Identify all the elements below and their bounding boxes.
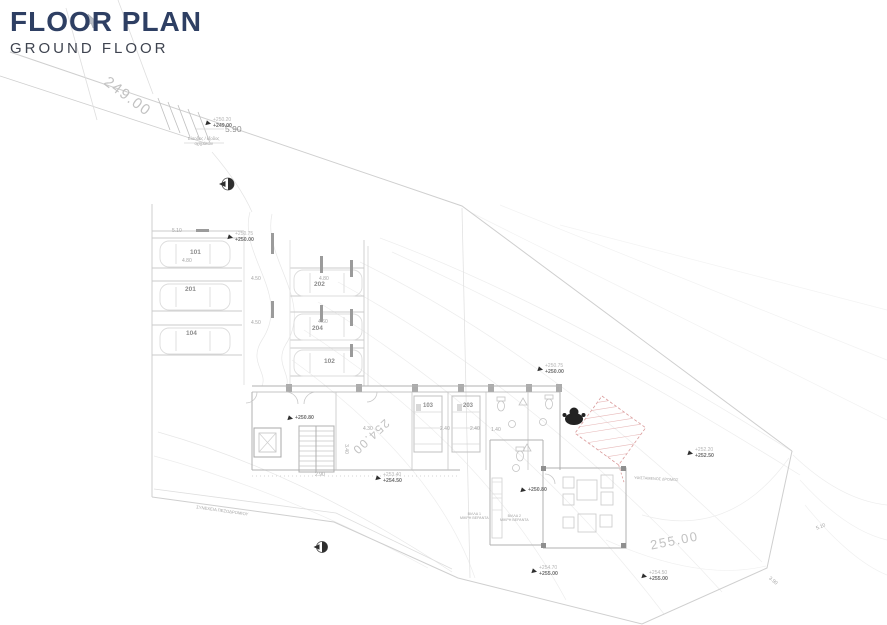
villa1-annotation: ΒΙΛΛΑ 1 ΜΙΚΡΗ ΒΕΡΑΝΤΑ	[460, 512, 489, 521]
red-annotation-structure	[568, 396, 659, 484]
north-benchmark-icon-2	[314, 542, 328, 553]
stall-number-204: 204	[312, 325, 323, 332]
spot-level: +250.20+249.00	[206, 117, 232, 130]
stall-number-104: 104	[186, 330, 197, 337]
spot-level-icon	[537, 366, 543, 372]
tree-icon	[563, 408, 586, 426]
page-subtitle: GROUND FLOOR	[10, 40, 202, 57]
spot-level: +250.75+250.00	[228, 231, 254, 244]
floor-plan-page: FLOOR PLAN GROUND FLOOR 249.00 254.00 25…	[0, 0, 887, 625]
dim-label: 4.50	[251, 276, 261, 282]
dim-label: 4.30	[363, 426, 373, 432]
dim-label: 4.80	[319, 276, 329, 282]
spot-level-icon	[531, 568, 537, 574]
villa2-annotation: ΒΙΛΛΑ 2 ΜΙΚΡΗ ΒΕΡΑΝΤΑ	[500, 514, 529, 523]
spot-level-icon	[375, 475, 381, 481]
dim-label: 2.40	[440, 426, 450, 432]
spot-level: +254.70+255.00	[532, 565, 558, 578]
structural-columns	[196, 229, 562, 392]
entrance-annotation: Είσοδος / έξοδος οχημάτων	[188, 136, 219, 147]
spot-level-icon	[227, 234, 233, 240]
dim-label: 3.40	[343, 444, 349, 454]
spot-level-icon	[205, 120, 211, 126]
spot-level-icon	[687, 450, 693, 456]
room-number-203: 203	[463, 403, 473, 409]
spot-level: +250.75+250.00	[538, 363, 564, 376]
dim-label: 1.40	[491, 427, 501, 433]
spot-level: +253.40+254.50	[376, 472, 402, 485]
plan-header: FLOOR PLAN GROUND FLOOR	[10, 6, 202, 57]
dim-label: 2.40	[470, 426, 480, 432]
parking-stalls	[152, 231, 368, 386]
spot-level: +252.20+252.50	[688, 447, 714, 460]
spot-level: +250.80	[288, 415, 314, 422]
north-benchmark-icon	[219, 178, 234, 190]
dim-label: 4.50	[251, 320, 261, 326]
stall-number-102: 102	[324, 358, 335, 365]
page-title: FLOOR PLAN	[10, 6, 202, 38]
dim-label: 4.60	[318, 319, 328, 325]
dim-label: 2.90	[315, 472, 325, 478]
stall-number-201: 201	[185, 286, 196, 293]
spot-level-icon	[520, 487, 526, 493]
dim-label: 4.80	[182, 258, 192, 264]
building-core	[246, 386, 626, 548]
spot-level-icon	[287, 415, 293, 421]
stall-number-101: 101	[190, 249, 201, 256]
spot-level-icon	[641, 573, 647, 579]
spot-level: +250.80	[521, 487, 547, 494]
room-number-103: 103	[423, 403, 433, 409]
dim-label: 5.10	[172, 228, 182, 234]
spot-level: +254.50+255.00	[642, 570, 668, 583]
stall-number-202: 202	[314, 281, 325, 288]
